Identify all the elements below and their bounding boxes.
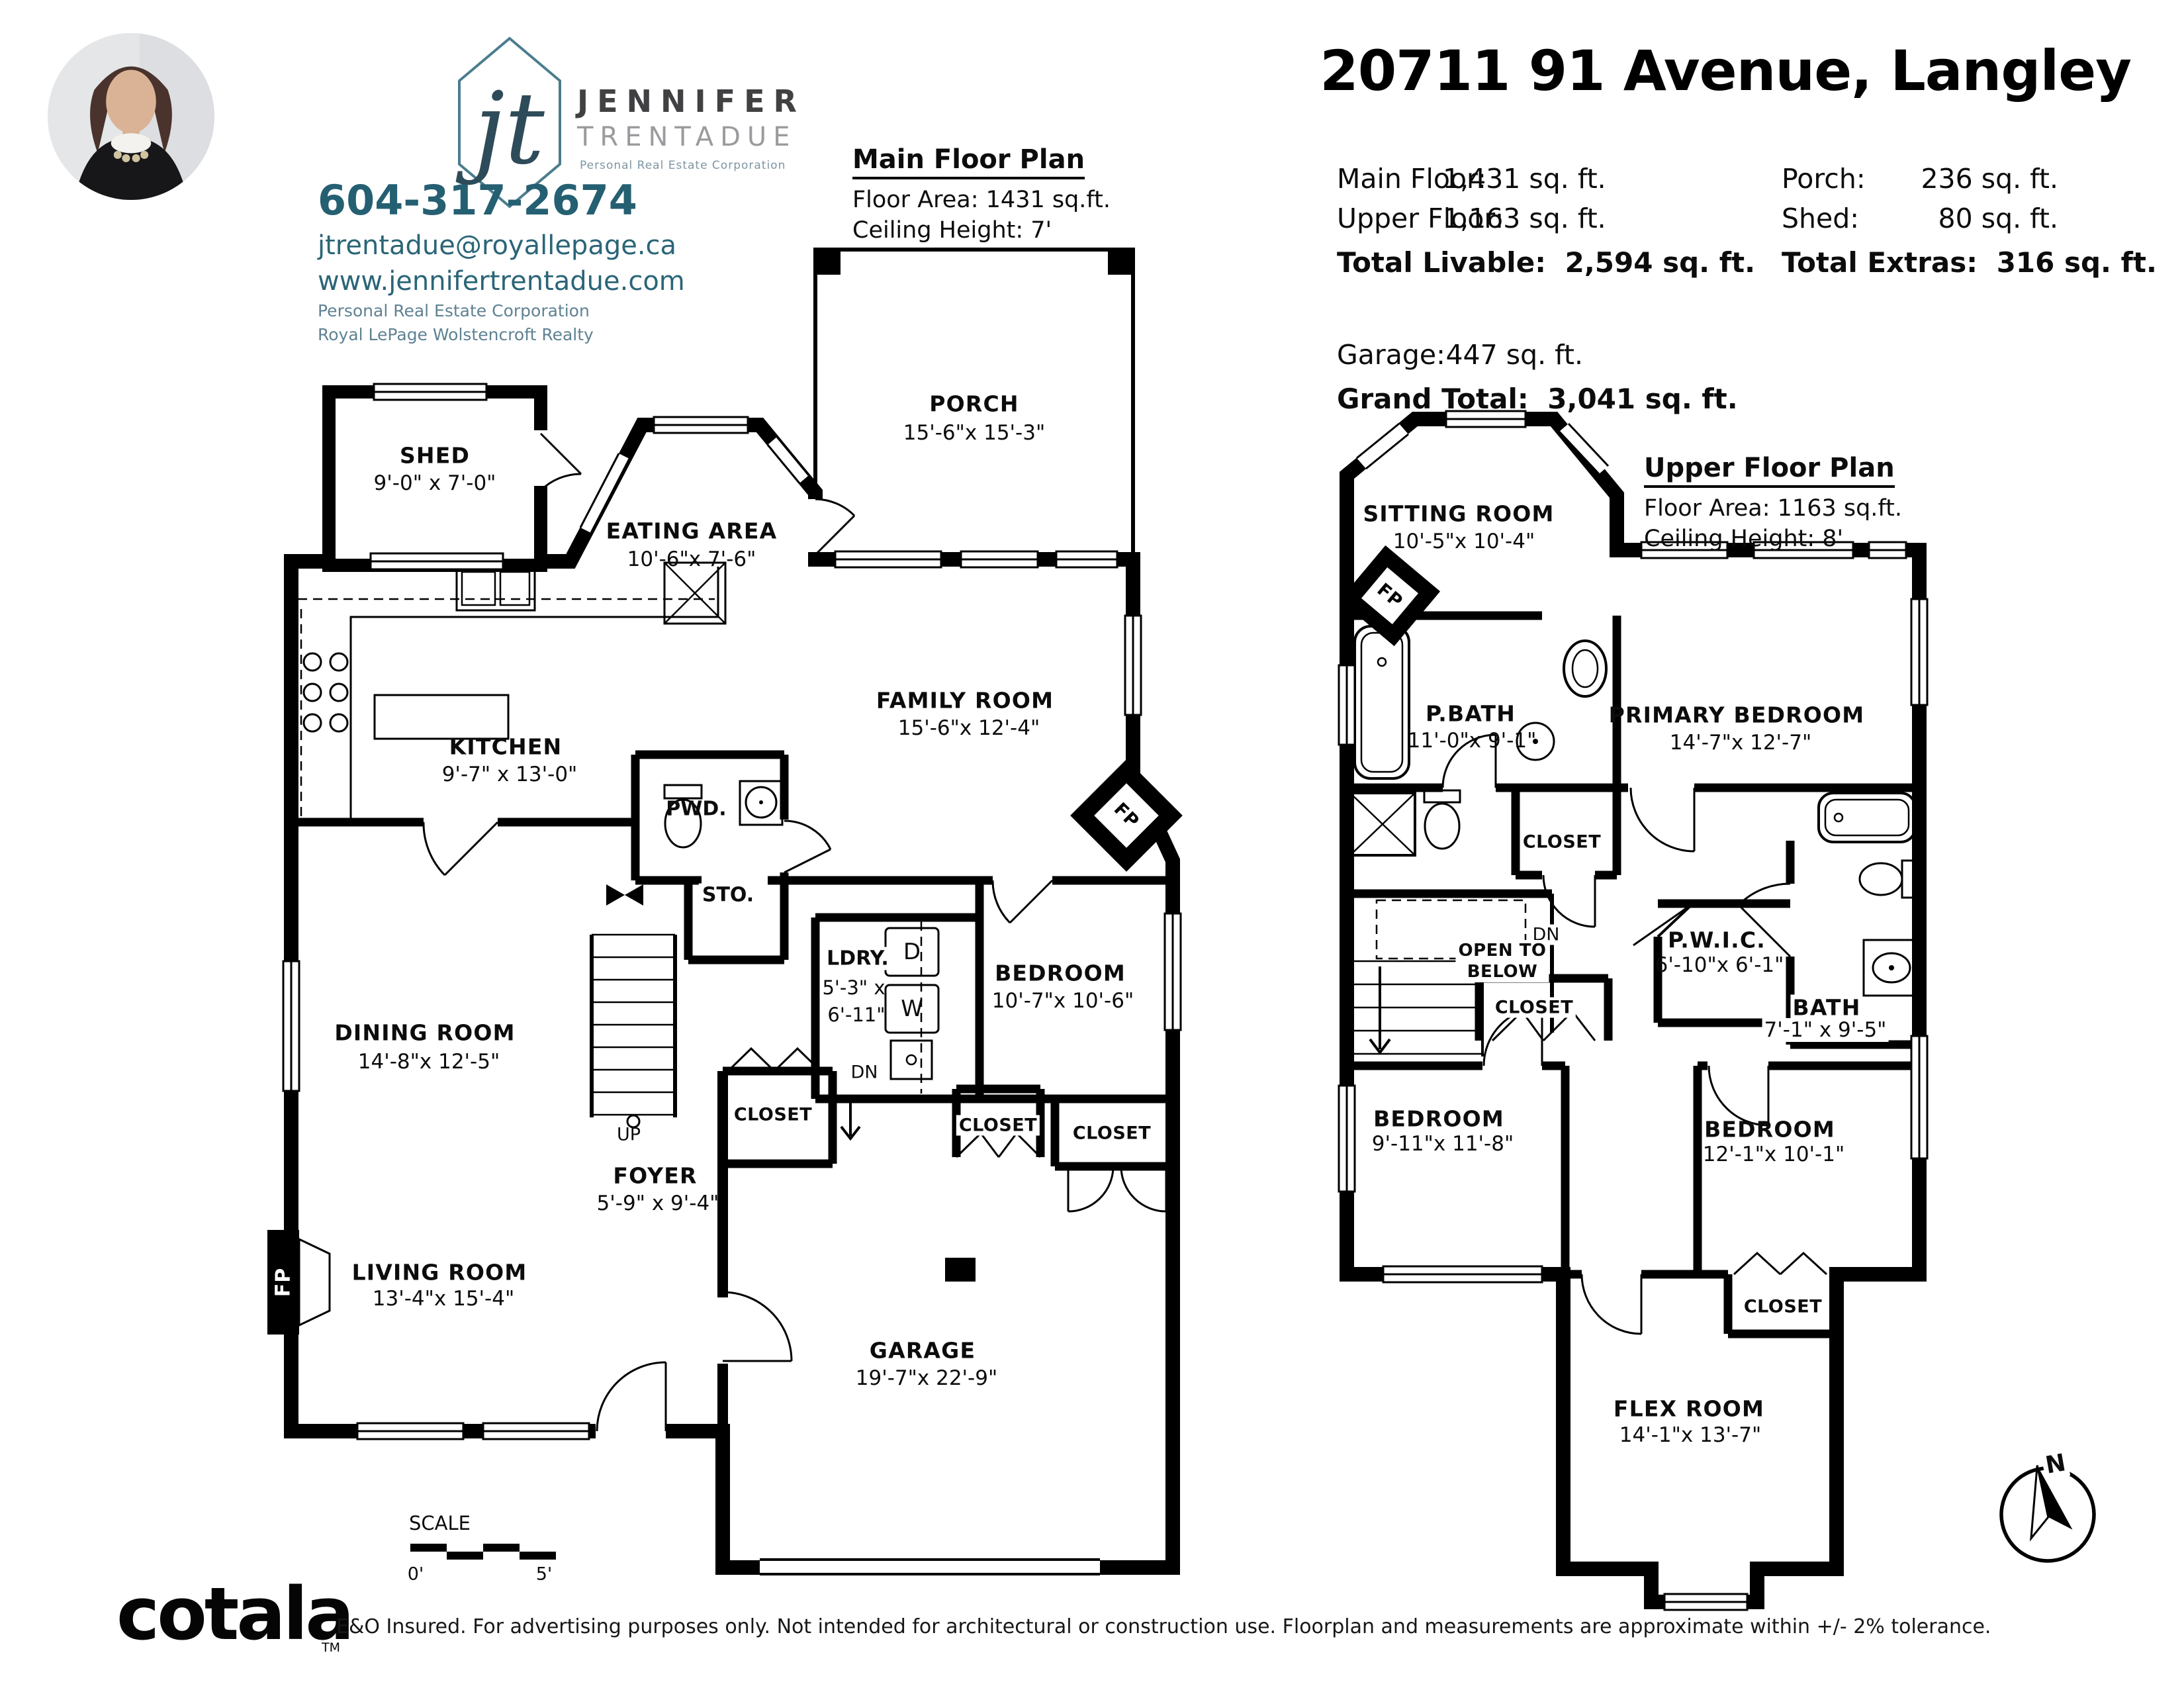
room-dims-pwic: 6'-10"x 6'-1" [1655, 953, 1784, 977]
agent-brokerage: Royal LePage Wolstencroft Realty [318, 323, 594, 347]
main-plan-heading-block: Main Floor Plan Floor Area: 1431 sq.ft. … [852, 144, 1111, 246]
page-title: 20711 91 Avenue, Langley [1291, 38, 2131, 103]
agent-photo-illustration [48, 33, 214, 200]
open-to-below-line1: OPEN TO [1458, 940, 1546, 961]
stat-total-extras-label: Total Extras: [1782, 246, 1978, 279]
room-label-living-room: LIVING ROOM [352, 1260, 527, 1286]
room-dims-flex-room: 14'-1"x 13'-7" [1619, 1423, 1761, 1447]
upper-plan-heading: Upper Floor Plan [1644, 453, 1895, 488]
room-dims-bedroom-right: 12'-1"x 10'-1" [1703, 1143, 1844, 1166]
closet-label-1: CLOSET [731, 1105, 815, 1125]
stat-garage-value: 447 sq. ft. [1443, 339, 1583, 371]
room-dims-garage: 19'-7"x 22'-9" [856, 1366, 997, 1390]
room-label-bedroom-right: BEDROOM [1704, 1117, 1835, 1143]
agent-last-name: TRENTADUE [577, 122, 796, 152]
room-label-foyer: FOYER [613, 1163, 697, 1189]
main-plan-ceiling: Ceiling Height: 7' [852, 215, 1111, 246]
room-label-primary-bedroom: PRIMARY BEDROOM [1609, 702, 1865, 728]
room-dims-shed: 9'-0" x 7'-0" [374, 471, 496, 495]
stat-total-livable: Total Livable: 2,594 sq. ft. [1337, 246, 1755, 279]
stat-upper-floor-value: 1,163 sq. ft. [1443, 203, 1583, 234]
room-label-eating-area: EATING AREA [606, 518, 778, 544]
stat-grand-total-value: 3,041 sq. ft. [1547, 383, 1737, 415]
open-to-below-line2: BELOW [1458, 961, 1546, 982]
room-label-bath: BATH [1790, 995, 1862, 1021]
stat-garage-label: Garage: [1337, 339, 1445, 371]
upper-plan-heading-block: Upper Floor Plan Floor Area: 1163 sq.ft.… [1644, 453, 1902, 554]
agent-website: www.jennifertrentadue.com [318, 266, 685, 297]
stat-total-livable-value: 2,594 sq. ft. [1565, 246, 1755, 279]
agent-first-name: JENNIFER [577, 83, 805, 119]
stat-shed-value: 80 sq. ft. [1906, 203, 2058, 234]
floorplan-flyer: jt JENNIFER TRENTADUE Personal Real Esta… [0, 0, 2184, 1688]
stairs-up-label: UP [617, 1125, 641, 1145]
scale-label: SCALE [409, 1512, 471, 1534]
room-dims-porch: 15'-6"x 15'-3" [903, 421, 1045, 445]
room-dims-eating-area: 10'-6"x 7'-6" [627, 547, 756, 571]
agent-email: jtrentadue@royallepage.ca [318, 230, 676, 261]
room-dims-living-room: 13'-4"x 15'-4" [373, 1287, 514, 1311]
cotala-tm: TM [322, 1640, 340, 1655]
room-label-shed: SHED [400, 443, 470, 469]
room-label-porch: PORCH [929, 391, 1019, 417]
room-dims-pbath: 11'-0"x 9'-1" [1408, 729, 1537, 753]
room-dims-ldry-1: 5'-3" x [822, 976, 885, 999]
room-dims-dining-room: 14'-8"x 12'-5" [358, 1050, 500, 1074]
dryer-label: D [903, 939, 921, 965]
room-dims-foyer: 5'-9" x 9'-4" [597, 1192, 719, 1215]
jt-monogram: jt [474, 79, 545, 179]
main-plan-heading: Main Floor Plan [852, 144, 1085, 179]
fireplace-label-living: FP [272, 1268, 295, 1297]
room-dims-sitting-room: 10'-5"x 10'-4" [1393, 530, 1535, 553]
room-label-kitchen: KITCHEN [449, 734, 563, 760]
room-label-pbath: P.BATH [1426, 701, 1516, 727]
cotala-logo: cotala [116, 1581, 352, 1647]
closet-label-2: CLOSET [956, 1115, 1040, 1136]
stat-shed-label: Shed: [1782, 203, 1859, 234]
stairs-dn-label-main: DN [851, 1062, 878, 1083]
stat-main-floor-value: 1,431 sq. ft. [1443, 163, 1583, 195]
closet-label-upper-bottom: CLOSET [1741, 1297, 1825, 1317]
upper-plan-ceiling: Ceiling Height: 8' [1644, 524, 1902, 554]
scale-end: 5' [536, 1564, 553, 1585]
room-label-pwic: P.W.I.C. [1668, 927, 1766, 953]
room-label-sitting-room: SITTING ROOM [1363, 501, 1554, 527]
room-dims-primary-bedroom: 14'-7"x 12'-7" [1670, 731, 1811, 755]
agent-corp-line: Personal Real Estate Corporation [318, 299, 590, 323]
room-label-bedroom-left: BEDROOM [1373, 1106, 1504, 1132]
room-label-ldry: LDRY. [825, 947, 891, 970]
room-dims-bedroom-left: 9'-11"x 11'-8" [1372, 1132, 1514, 1156]
room-label-dining-room: DINING ROOM [334, 1020, 515, 1046]
agent-photo [48, 33, 214, 200]
washer-label: W [901, 996, 923, 1022]
room-label-sto: STO. [699, 884, 757, 907]
compass-north-label: N [2041, 1449, 2071, 1480]
room-dims-bedroom-main: 10'-7"x 10'-6" [992, 989, 1134, 1013]
room-label-pwd: PWD. [666, 798, 726, 821]
upper-plan-floor-area: Floor Area: 1163 sq.ft. [1644, 493, 1902, 524]
stat-grand-total-label: Grand Total: [1337, 383, 1529, 415]
stat-grand-total: Grand Total: 3,041 sq. ft. [1337, 383, 1738, 415]
closet-label-upper-mid: CLOSET [1492, 998, 1576, 1018]
room-label-family-room: FAMILY ROOM [876, 688, 1054, 714]
room-dims-family-room: 15'-6"x 12'-4" [898, 716, 1040, 740]
room-label-flex-room: FLEX ROOM [1614, 1396, 1764, 1422]
room-dims-bath: 7'-1" x 9'-5" [1762, 1018, 1889, 1042]
room-dims-ldry-2: 6'-11" [827, 1004, 885, 1026]
agent-designation: Personal Real Estate Corporation [580, 159, 786, 172]
agent-phone: 604-317-2674 [318, 176, 637, 224]
footer-disclaimer: E&O Insured. For advertising purposes on… [336, 1615, 1991, 1638]
main-plan-floor-area: Floor Area: 1431 sq.ft. [852, 185, 1111, 215]
closet-label-3: CLOSET [1070, 1123, 1154, 1144]
stat-total-livable-label: Total Livable: [1337, 246, 1546, 279]
open-to-below-label: OPEN TO BELOW [1455, 940, 1549, 982]
stat-porch-label: Porch: [1782, 163, 1866, 195]
stat-total-extras: Total Extras: 316 sq. ft. [1782, 246, 2157, 279]
stat-total-extras-value: 316 sq. ft. [1997, 246, 2157, 279]
closet-label-upper-top: CLOSET [1520, 832, 1604, 853]
stat-porch-value: 236 sq. ft. [1906, 163, 2058, 195]
room-label-bedroom-main: BEDROOM [995, 961, 1126, 986]
room-label-garage: GARAGE [870, 1338, 976, 1364]
room-dims-kitchen: 9'-7" x 13'-0" [442, 763, 578, 786]
scale-start: 0' [408, 1564, 424, 1585]
